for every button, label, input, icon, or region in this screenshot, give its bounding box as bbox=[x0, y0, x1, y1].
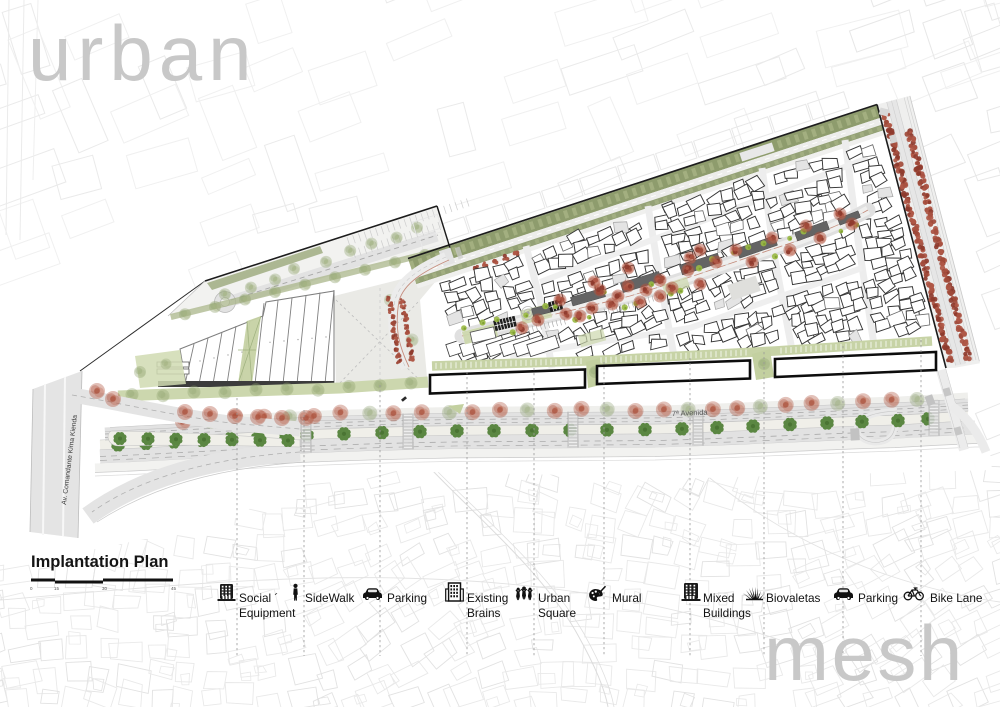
svg-text:7ª Avenida: 7ª Avenida bbox=[672, 408, 709, 418]
svg-text:urban: urban bbox=[28, 9, 258, 97]
svg-text:Buildings: Buildings bbox=[703, 606, 751, 620]
svg-text:Mural: Mural bbox=[612, 591, 642, 605]
svg-text:Equipment: Equipment bbox=[239, 606, 296, 620]
svg-text:45: 45 bbox=[171, 586, 177, 591]
svg-text:Parking: Parking bbox=[387, 591, 427, 605]
svg-text:Bike Lane: Bike Lane bbox=[930, 591, 983, 605]
svg-text:Brains: Brains bbox=[467, 606, 501, 620]
svg-text:Parking: Parking bbox=[858, 591, 898, 605]
svg-text:Social ´: Social ´ bbox=[239, 591, 278, 605]
svg-text:mesh: mesh bbox=[764, 609, 965, 697]
svg-text:Existing: Existing bbox=[467, 591, 508, 605]
svg-text:15: 15 bbox=[54, 586, 60, 591]
svg-text:Square: Square bbox=[538, 606, 576, 620]
svg-text:SideWalk: SideWalk bbox=[305, 591, 354, 605]
svg-text:30: 30 bbox=[102, 586, 108, 591]
svg-text:Implantation Plan: Implantation Plan bbox=[31, 553, 169, 571]
svg-text:Urban: Urban bbox=[538, 591, 570, 605]
svg-text:Biovaletas: Biovaletas bbox=[766, 591, 821, 605]
svg-text:Mixed: Mixed bbox=[703, 591, 734, 605]
